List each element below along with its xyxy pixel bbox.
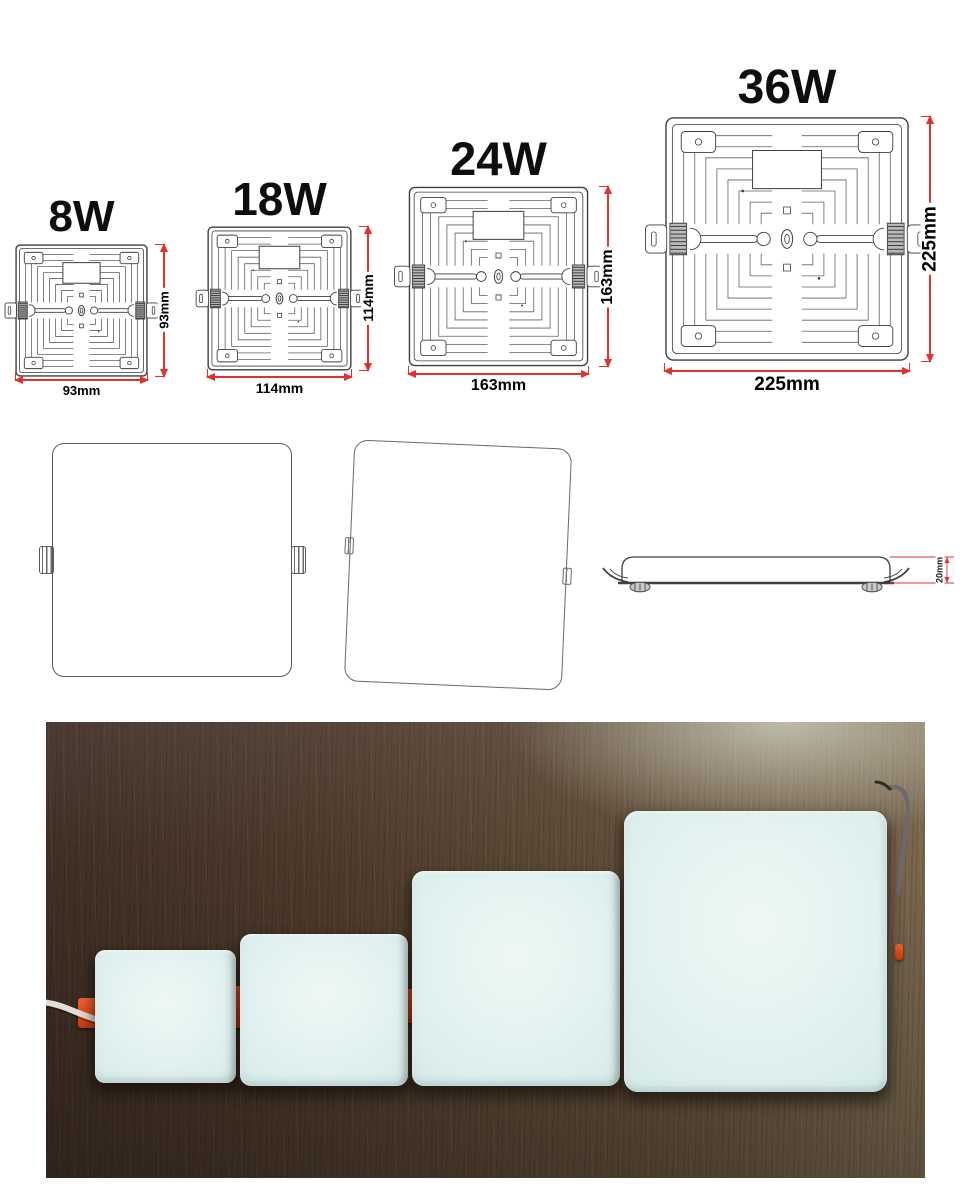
front-view-straight xyxy=(52,443,292,677)
white-wire xyxy=(46,1002,102,1021)
spring-clip-left xyxy=(39,546,54,574)
gray-wire xyxy=(889,787,908,892)
spring-clip-left xyxy=(344,537,354,554)
height-dim-label-8w: 93mm xyxy=(158,288,171,332)
width-dim-label-18w: 114mm xyxy=(207,381,352,395)
photo-panel-24w xyxy=(412,871,620,1086)
width-dim-label-24w: 163mm xyxy=(408,378,589,394)
spring-clip-right xyxy=(562,568,572,585)
product-photo xyxy=(46,722,925,1178)
front-view-tilted xyxy=(344,439,572,690)
photo-panel-36w xyxy=(624,811,887,1092)
photo-panel-8w xyxy=(95,950,236,1083)
height-dim-label-18w: 114mm xyxy=(361,271,375,324)
thickness-dim-label: 20mm xyxy=(936,554,945,586)
gray-wire-tip xyxy=(876,782,890,789)
side-view-drawing xyxy=(598,538,970,600)
product-spec-sheet: 8W 18W 24W 36W 93mm 114mm 163mm 225mm 93… xyxy=(0,0,970,1200)
height-dim-label-24w: 163mm xyxy=(600,246,616,307)
width-dim-label-36w: 225mm xyxy=(664,375,910,394)
spring-clip-right xyxy=(291,546,306,574)
photo-panel-18w xyxy=(240,934,408,1086)
height-dim-label-36w: 225mm xyxy=(921,203,940,275)
width-dim-label-8w: 93mm xyxy=(15,384,148,397)
